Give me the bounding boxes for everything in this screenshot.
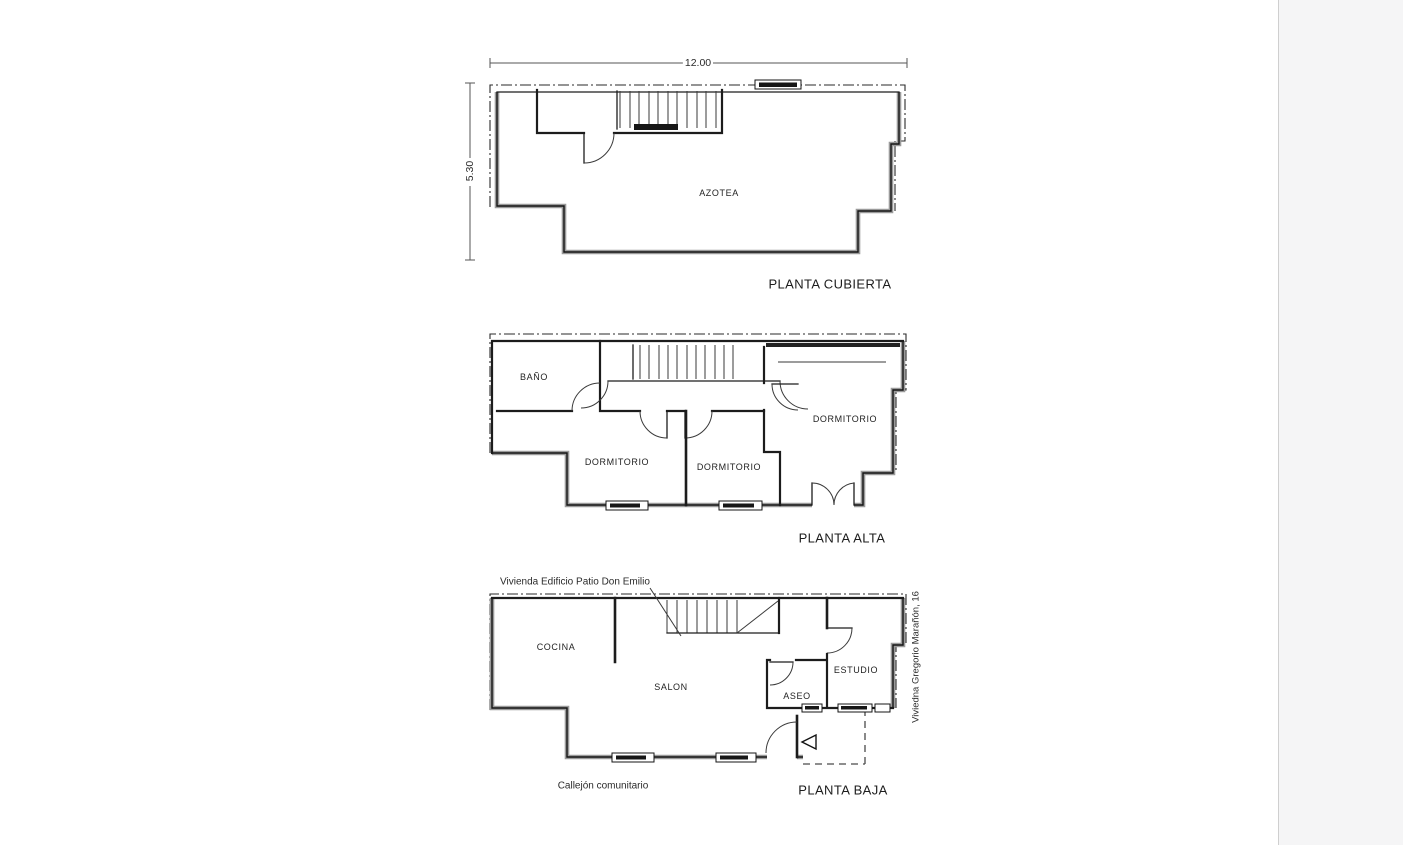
annotation-building-name: Vivienda Edificio Patio Don Emilio <box>500 577 650 588</box>
stair-treads-baja <box>667 600 737 633</box>
study-door-arc <box>827 628 852 653</box>
room-label-cocina: COCINA <box>537 642 576 652</box>
hall-door-arc-right <box>780 381 808 409</box>
floor-plan-drawing <box>0 0 1403 845</box>
parapet-wall-halo <box>497 92 899 252</box>
annotation-address: Viviedna Gregorio Marañón, 16 <box>911 591 922 723</box>
stair-break-diagonal <box>737 601 778 633</box>
plan-sheet: 12.00 5.30 AZOTEA PLANTA CUBIERTA BAÑO D… <box>0 0 1403 845</box>
window-marker <box>875 704 890 712</box>
french-door-leaves <box>812 483 854 505</box>
room-label-salon: SALON <box>654 682 688 692</box>
plan-title-cubierta: PLANTA CUBIERTA <box>768 277 891 292</box>
side-panel <box>1278 0 1403 845</box>
room-label-bano: BAÑO <box>520 372 548 382</box>
door-arc <box>584 133 614 163</box>
bedroom-door-arc-right <box>685 411 712 438</box>
stair-rail-bar <box>634 124 678 130</box>
right-bedroom-walls <box>764 347 780 505</box>
plan-title-baja: PLANTA BAJA <box>798 783 887 798</box>
floor-plan-baja <box>490 588 906 764</box>
window-marker <box>719 501 762 510</box>
annotation-leader-line <box>650 588 681 636</box>
room-label-dormitorio-2: DORMITORIO <box>697 462 761 472</box>
bedroom-door-leaves <box>667 411 685 438</box>
porch-dashed-line <box>803 712 865 764</box>
roofline-dashdot-baja <box>490 594 906 710</box>
hall-door-arc-left <box>581 381 608 408</box>
dimension-width-label: 12.00 <box>683 57 713 69</box>
bathroom-door-arc <box>572 383 600 411</box>
roofline-dashdot-alta <box>490 334 906 471</box>
room-label-estudio: ESTUDIO <box>834 665 878 675</box>
room-label-azotea: AZOTEA <box>699 188 739 198</box>
window-marker <box>716 753 756 762</box>
stair-treads-cubierta <box>620 91 716 128</box>
dimension-height-label: 5.30 <box>464 159 476 183</box>
french-door-arcs <box>812 483 854 505</box>
room-label-dormitorio-1: DORMITORIO <box>585 457 649 467</box>
parapet-wall <box>497 92 899 252</box>
window-marker <box>612 753 654 762</box>
plan-title-alta: PLANTA ALTA <box>799 531 886 546</box>
entry-door-arc <box>766 722 797 753</box>
room-label-dormitorio-3: DORMITORIO <box>813 414 877 424</box>
roof-chimney <box>755 80 801 89</box>
stair-treads-alta <box>640 345 733 379</box>
wc-door-arc <box>770 662 793 685</box>
bedroom-door-arc-left <box>640 411 667 438</box>
room-label-aseo: ASEO <box>783 691 810 701</box>
window-marker <box>838 704 872 712</box>
window-marker <box>802 704 822 712</box>
top-left-walls-alta <box>492 341 903 453</box>
window-marker <box>606 501 648 510</box>
entrance-arrow-icon <box>802 735 816 749</box>
annotation-alley: Callejón comunitario <box>558 781 649 792</box>
floor-plan-cubierta <box>465 58 907 260</box>
